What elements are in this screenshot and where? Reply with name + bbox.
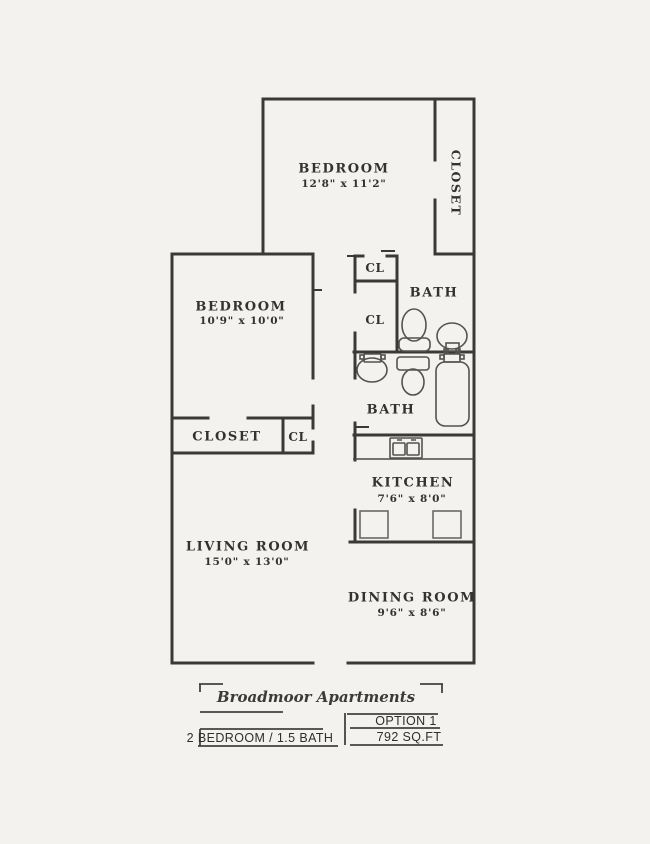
floor-plan-drawing <box>0 0 650 844</box>
living-room-label: LIVING ROOM <box>186 540 310 555</box>
bedroom-left-dims: 10'9" x 10'0" <box>199 315 284 327</box>
area-label: 792 SQ.FT <box>377 730 442 744</box>
kitchen-dims: 7'6" x 8'0" <box>378 493 447 505</box>
appliance-icon <box>360 511 461 538</box>
closet-row-label: CLOSET <box>192 430 261 445</box>
bedroom-top-label: BEDROOM <box>298 162 389 177</box>
hall-cl-label: CL <box>365 313 384 327</box>
closet-row-cl-label: CL <box>288 430 307 444</box>
unit-type-label: 2 BEDROOM / 1.5 BATH <box>187 731 334 745</box>
bedroom-top-closet-label: CLOSET <box>449 150 464 216</box>
upper-cl-label: CL <box>365 261 384 275</box>
toilet-icon <box>397 357 429 395</box>
living-room-dims: 15'0" x 13'0" <box>204 556 289 568</box>
half-bath-label: BATH <box>410 286 459 301</box>
bedroom-top-dims: 12'8" x 11'2" <box>301 178 386 190</box>
dining-room-label: DINING ROOM <box>348 591 476 606</box>
floor-plan-page: BEDROOM 12'8" x 11'2" CLOSET BEDROOM 10'… <box>0 0 650 844</box>
option-label: OPTION 1 <box>375 714 437 728</box>
bathtub-icon <box>436 354 469 426</box>
bedroom-left-label: BEDROOM <box>195 300 286 315</box>
sink-icon <box>357 354 387 382</box>
apartment-name: Broadmoor Apartments <box>217 688 415 706</box>
full-bath-label: BATH <box>367 403 416 418</box>
pedestal-sink-icon <box>437 323 467 353</box>
dining-room-dims: 9'6" x 8'6" <box>378 607 447 619</box>
toilet-icon <box>399 309 430 351</box>
kitchen-double-sink-icon <box>390 438 422 458</box>
kitchen-label: KITCHEN <box>372 476 455 491</box>
